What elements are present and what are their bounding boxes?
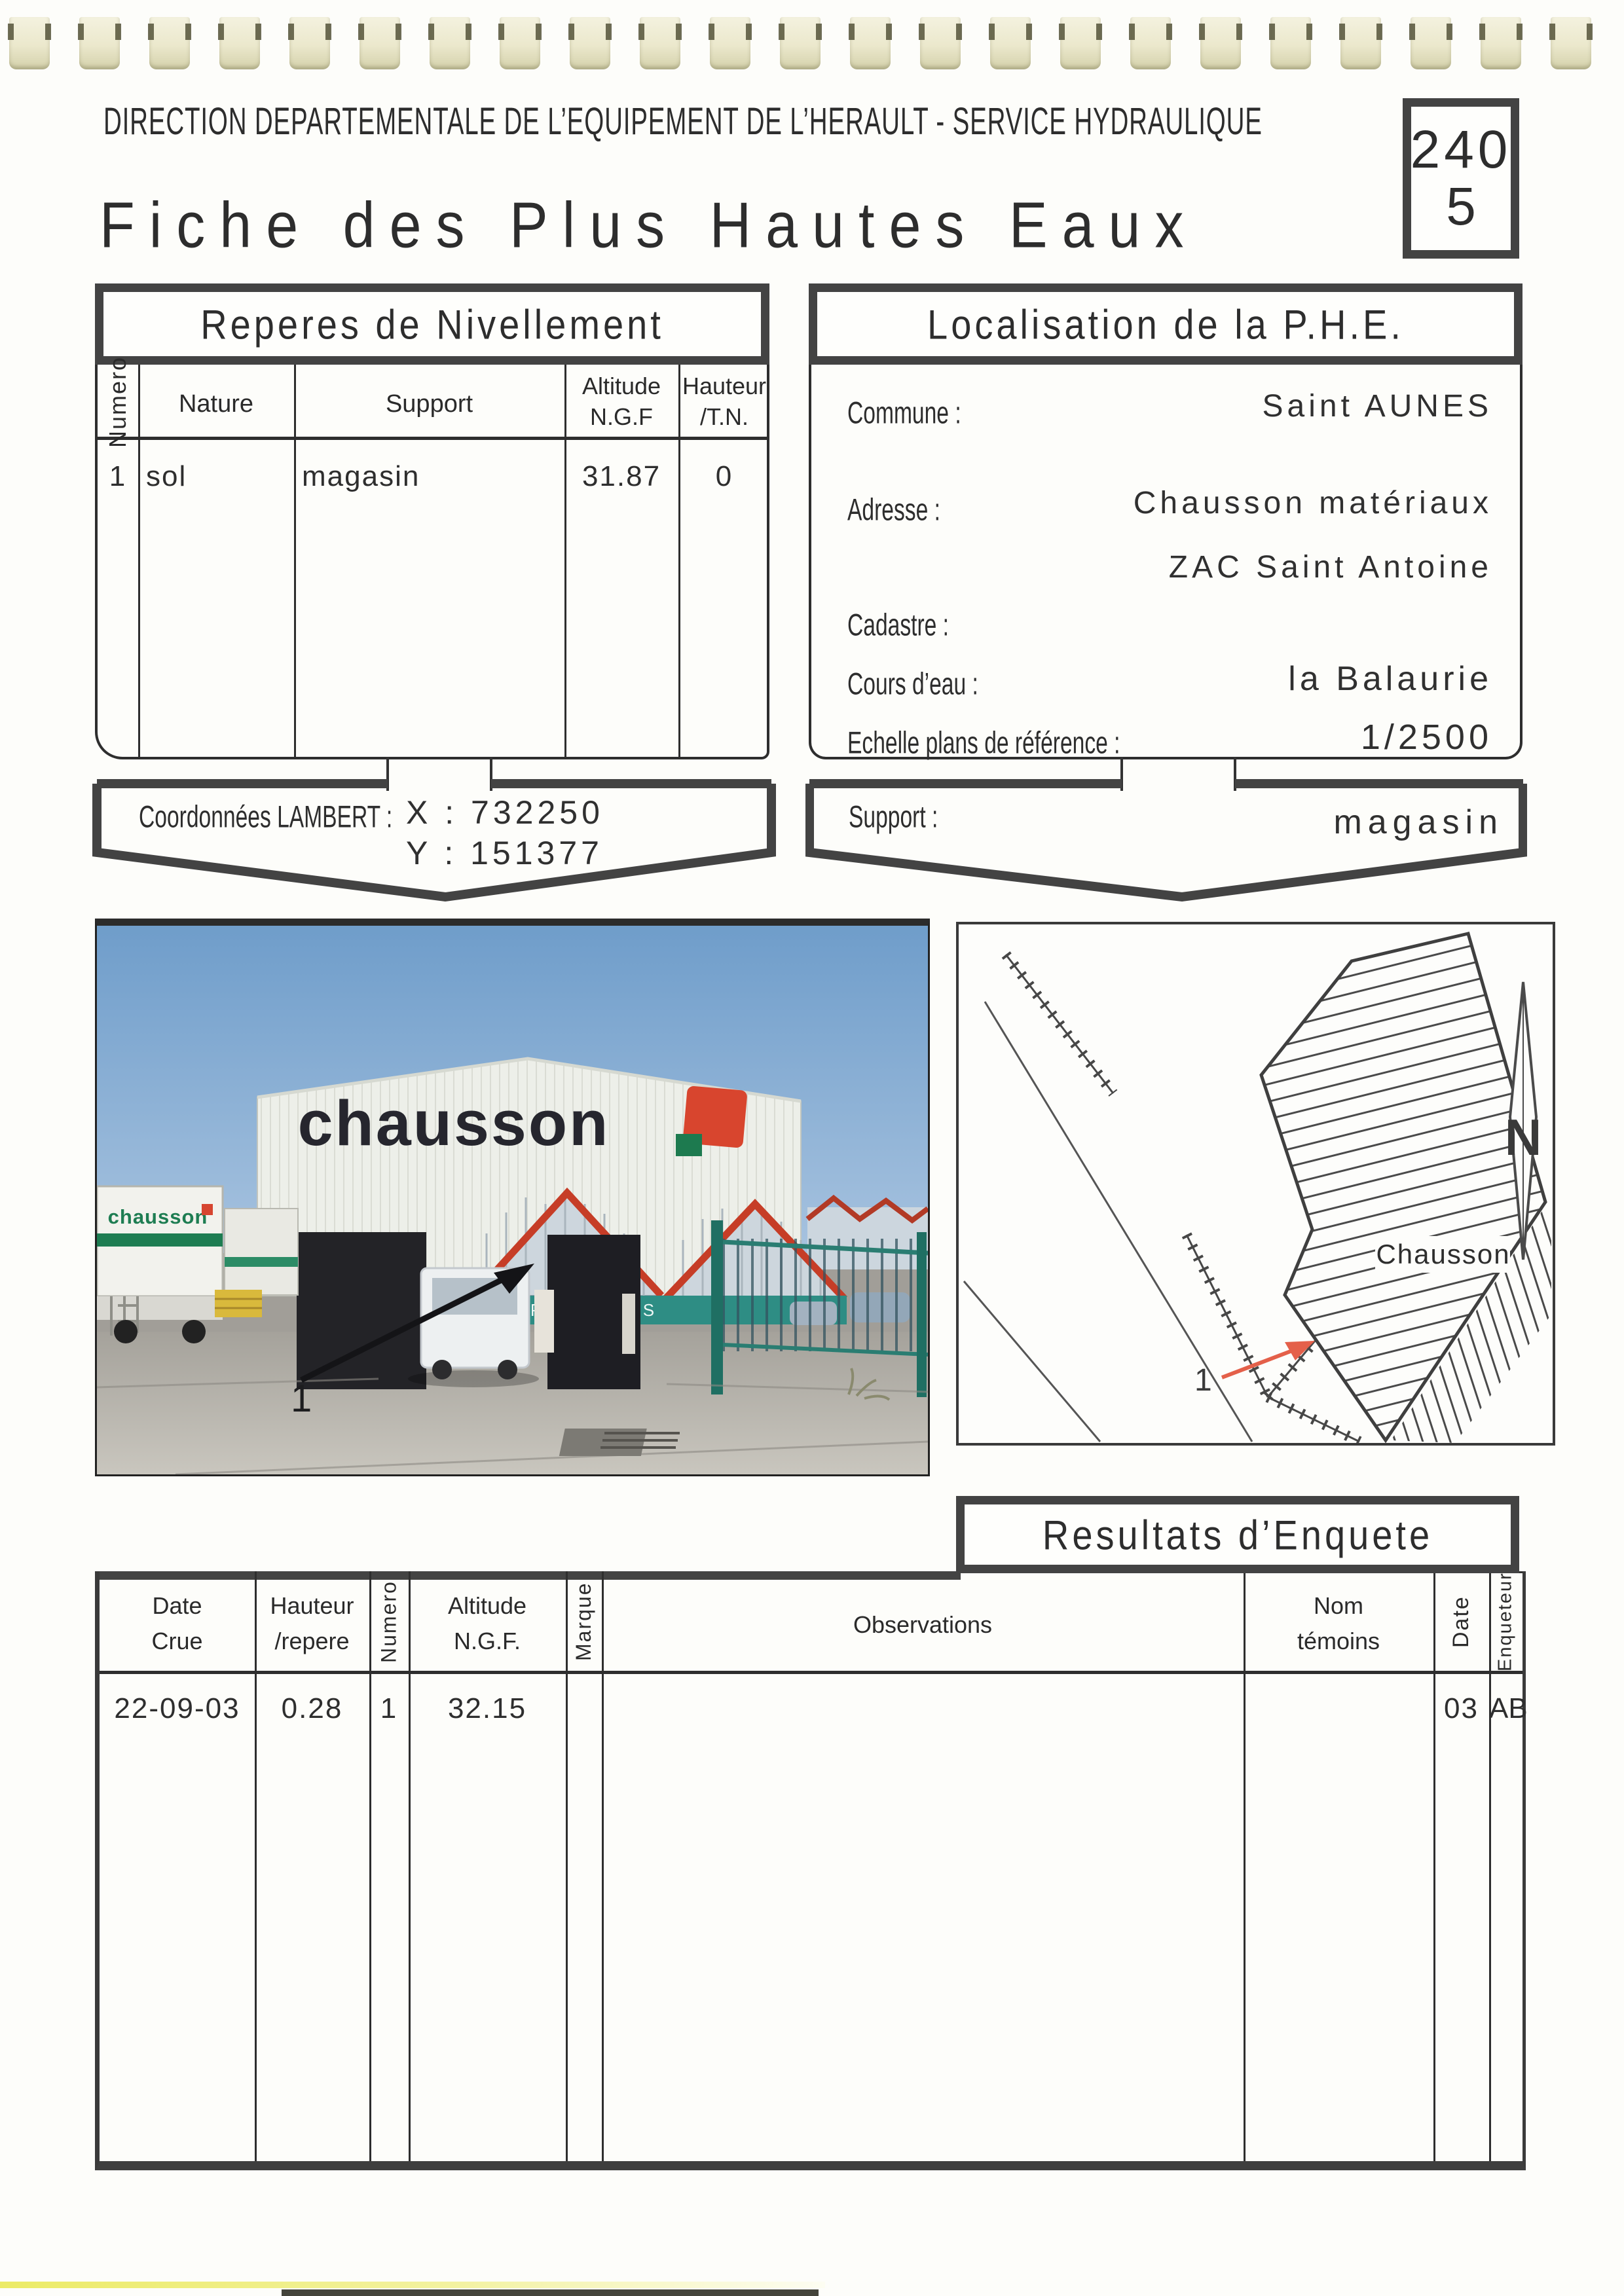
bollard	[622, 1294, 635, 1354]
res-row-date-crue: 22-09-03	[100, 1692, 255, 1725]
scanned-form-page: DIRECTION DEPARTEMENTALE DE L’EQUIPEMENT…	[0, 0, 1624, 2296]
map-road-line-2	[964, 1281, 1100, 1442]
res-divider-3	[409, 1571, 411, 2161]
reperes-col-nature: Nature	[138, 386, 294, 423]
reperes-title: Reperes de Nivellement	[200, 301, 664, 348]
binding-tab	[1481, 17, 1521, 69]
res-row-altitude: 32.15	[409, 1692, 566, 1725]
res-col-enqueteur: Enqueteur	[1489, 1574, 1522, 1669]
adresse-value-2: ZAC Saint Antoine	[1047, 549, 1492, 585]
resultats-top-thick	[100, 1571, 961, 1580]
doc-number-bottom: 5	[1446, 179, 1476, 235]
site-photo-scene: chausson PLAFONDS	[97, 926, 928, 1474]
building-logo-green	[676, 1134, 702, 1156]
reperes-table: Numero Nature Support Altitude N.G.F Hau…	[95, 365, 769, 759]
lambert-label: Coordonnées LAMBERT :	[139, 800, 441, 829]
photo-marker-label: 1	[291, 1377, 312, 1420]
location-map: Chausson 1 N	[956, 922, 1555, 1446]
lambert-x: X : 732250	[406, 793, 604, 831]
reperes-row-support: magasin	[302, 460, 420, 493]
binding-tab	[710, 17, 750, 69]
reperes-title-box: Reperes de Nivellement	[95, 283, 769, 365]
reperes-col-altitude: Altitude N.G.F	[564, 371, 678, 433]
res-row-numero: 1	[369, 1692, 409, 1725]
compass-letter: N	[1505, 1108, 1541, 1166]
reperes-divider-1	[138, 365, 140, 757]
binding-tab	[1060, 17, 1101, 69]
res-col-date2: Date	[1433, 1576, 1489, 1667]
binding-tab	[990, 17, 1031, 69]
scan-artifact-dark-strip	[282, 2289, 819, 2296]
reperes-row-nature: sol	[146, 460, 187, 493]
doc-number-box: 240 5	[1403, 98, 1519, 259]
map-marker-label: 1	[1194, 1363, 1212, 1398]
location-map-drawing: Chausson 1 N	[959, 924, 1553, 1443]
resultats-table: DateCrue Hauteur/repere Numero AltitudeN…	[95, 1571, 1526, 2170]
res-col-altitude: AltitudeN.G.F.	[409, 1588, 566, 1659]
localisation-body: Commune : Adresse : Cadastre : Cours d’e…	[809, 365, 1522, 759]
adresse-value-1: Chausson matériaux	[1047, 485, 1492, 521]
cours-label: Cours d’eau :	[847, 667, 1003, 697]
map-road-line-1	[985, 1002, 1252, 1442]
binding-strip	[9, 17, 1624, 73]
binding-tab	[360, 17, 400, 69]
reperes-row-altitude: 31.87	[564, 460, 678, 493]
binding-tab	[79, 17, 120, 69]
binding-tab	[1551, 17, 1591, 69]
binding-tab	[500, 17, 540, 69]
page-title: Fiche des Plus Hautes Eaux	[100, 188, 1198, 263]
header-line-text: DIRECTION DEPARTEMENTALE DE L’EQUIPEMENT…	[103, 98, 1263, 143]
truck-sign-text: chausson	[108, 1205, 208, 1228]
binding-tab	[1340, 17, 1381, 69]
res-divider-6	[1244, 1571, 1246, 2161]
binding-tab	[430, 17, 470, 69]
res-divider-5	[602, 1571, 604, 2161]
map-building-label: Chausson	[1376, 1239, 1510, 1269]
res-row-enqueteur: AB	[1489, 1692, 1522, 1725]
binding-tab	[1270, 17, 1311, 69]
binding-tab	[289, 17, 330, 69]
binding-tab	[1411, 17, 1451, 69]
building-sign-text: chausson	[298, 1087, 610, 1159]
cadastre-label: Cadastre :	[847, 608, 969, 638]
open-bay	[297, 1232, 426, 1389]
res-col-date-crue: DateCrue	[100, 1588, 255, 1659]
scan-artifact-yellow-line	[0, 2282, 825, 2288]
binding-tab	[570, 17, 610, 69]
res-row-hauteur: 0.28	[255, 1692, 369, 1725]
echelle-value: 1/2500	[1047, 717, 1492, 757]
resultats-title: Resultats d’Enquete	[1043, 1511, 1433, 1559]
reperes-col-support: Support	[294, 386, 564, 423]
lambert-y: Y : 151377	[406, 834, 603, 872]
reperes-col-numero: Numero	[99, 369, 137, 435]
localisation-title: Localisation de la P.H.E.	[927, 301, 1404, 348]
support-banner-value: magasin	[1244, 803, 1504, 842]
reperes-row-hauteur: 0	[678, 460, 770, 493]
res-col-marque: Marque	[566, 1576, 602, 1667]
binding-tab	[640, 17, 680, 69]
localisation-title-box: Localisation de la P.H.E.	[809, 283, 1522, 365]
commune-label: Commune :	[847, 396, 983, 426]
res-col-numero: Numero	[369, 1576, 409, 1667]
commune-value: Saint AUNES	[1047, 388, 1492, 424]
header-line: DIRECTION DEPARTEMENTALE DE L’EQUIPEMENT…	[103, 98, 1517, 134]
res-row-date: 03	[1433, 1692, 1489, 1725]
binding-tab	[1130, 17, 1171, 69]
site-photo: chausson PLAFONDS	[95, 919, 930, 1476]
binding-tab	[850, 17, 891, 69]
cours-value: la Balaurie	[1047, 659, 1492, 699]
binding-tab	[219, 17, 260, 69]
support-banner-label: Support :	[849, 800, 955, 829]
reperes-col-hauteur: Hauteur /T.N.	[678, 371, 770, 433]
reperes-row-numero: 1	[98, 460, 138, 493]
binding-tab	[920, 17, 961, 69]
reperes-divider-2	[294, 365, 296, 757]
binding-tab	[780, 17, 821, 69]
res-col-nom: Nomtémoins	[1244, 1588, 1433, 1659]
resultats-title-box: Resultats d’Enquete	[956, 1496, 1519, 1573]
res-col-hauteur: Hauteur/repere	[255, 1588, 369, 1659]
res-header-line	[100, 1671, 1522, 1674]
adresse-label: Adresse :	[847, 493, 958, 522]
res-divider-1	[255, 1571, 257, 2161]
res-col-observations: Observations	[602, 1607, 1244, 1643]
binding-tab	[1200, 17, 1241, 69]
binding-tab	[149, 17, 190, 69]
doc-number-top: 240	[1411, 122, 1512, 178]
binding-tab	[9, 17, 50, 69]
reperes-header-line	[98, 437, 767, 440]
